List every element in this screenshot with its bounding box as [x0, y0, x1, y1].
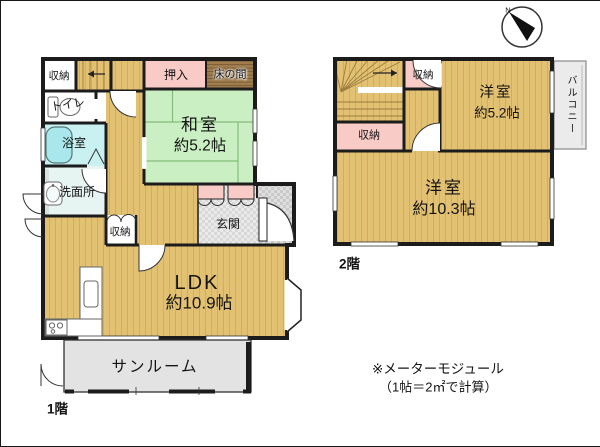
label-floor2: 2階 [339, 257, 360, 271]
label-ldk-size: 約10.9帖 [165, 295, 232, 312]
compass-north-label: N [505, 6, 510, 14]
label-balcony: バルコニー [565, 75, 575, 135]
label-storage-2f-b: 収納 [358, 131, 380, 142]
label-oshiire: 押入 [164, 69, 188, 81]
note-line1: ※メーターモジュール [372, 362, 504, 376]
label-room-large: 洋室 [425, 180, 463, 197]
label-washroom: 洗面所 [59, 186, 95, 198]
label-bath: 浴室 [62, 137, 86, 149]
label-storage-2f-a: 収納 [413, 70, 434, 81]
label-room-large-size: 約10.3帖 [412, 202, 475, 218]
stove-icon [46, 320, 67, 335]
label-ldk: LDK [175, 273, 220, 293]
label-washitsu: 和室 [181, 117, 219, 134]
label-washitsu-size: 約5.2帖 [174, 138, 227, 154]
label-genkan: 玄関 [216, 218, 240, 230]
bay-window [285, 278, 302, 332]
label-storage-hall: 収納 [110, 227, 131, 238]
floorplan-drawing [1, 1, 600, 446]
note-line2: （1帖＝2㎡で計算） [379, 381, 497, 394]
label-tokonoma: 床の間 [214, 70, 247, 81]
label-floor1: 1階 [47, 402, 68, 416]
label-storage-topleft: 収納 [49, 71, 70, 82]
label-room-small: 洋室 [480, 86, 513, 101]
floorplan-image: 収納 押入 床の間 和室 約5.2帖 トイレ 浴室 洗面所 収納 玄関 LDK … [0, 0, 600, 447]
label-room-small-size: 約5.2帖 [474, 106, 520, 120]
label-sunroom: サンルーム [111, 359, 198, 375]
